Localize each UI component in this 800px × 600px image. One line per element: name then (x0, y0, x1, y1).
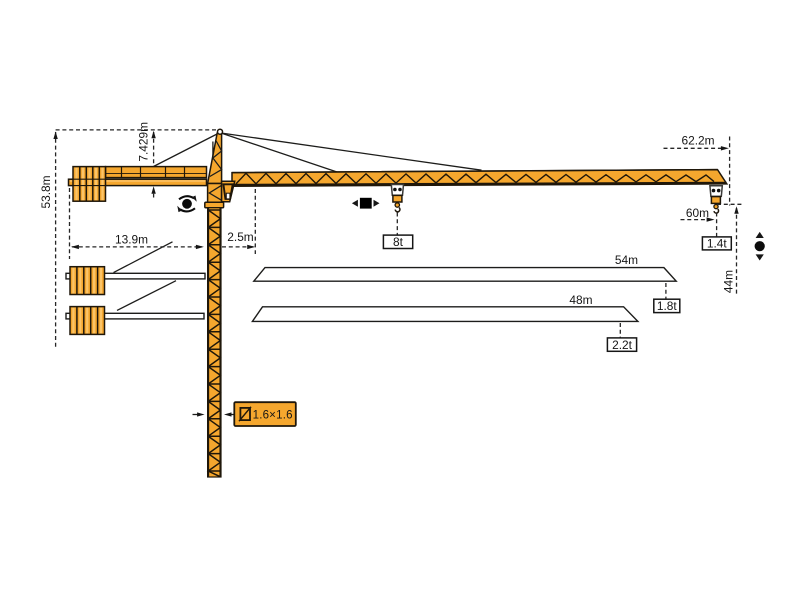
svg-text:2.2t: 2.2t (612, 338, 633, 352)
svg-text:48m: 48m (569, 293, 592, 307)
svg-text:1.4t: 1.4t (707, 237, 728, 251)
svg-text:1.6×1.6: 1.6×1.6 (253, 409, 293, 421)
svg-text:53.8m: 53.8m (39, 175, 53, 208)
svg-text:44m: 44m (722, 270, 736, 293)
svg-text:54m: 54m (615, 253, 638, 267)
svg-text:7.429m: 7.429m (137, 122, 151, 162)
svg-text:62.2m: 62.2m (681, 133, 714, 147)
svg-text:1.8t: 1.8t (657, 299, 678, 313)
svg-text:13.9m: 13.9m (115, 232, 148, 246)
svg-text:60m: 60m (686, 206, 709, 220)
svg-text:2.5m: 2.5m (227, 230, 254, 244)
svg-text:8t: 8t (393, 235, 404, 249)
